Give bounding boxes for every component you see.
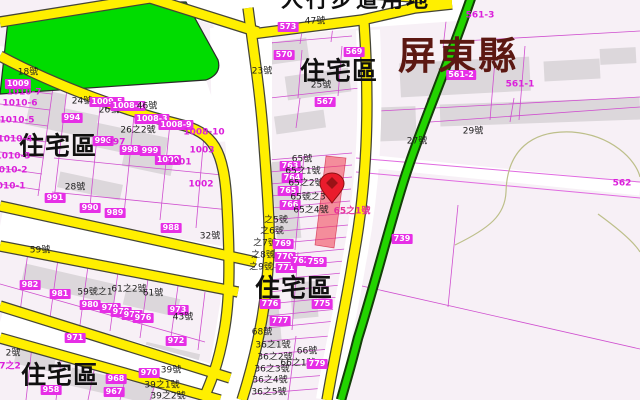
parcel-label: 779 — [307, 359, 328, 369]
parcel-label: 39之1號 — [144, 382, 179, 391]
parcel-label: 61號 — [143, 290, 163, 299]
parcel-label: 66號 — [297, 348, 317, 357]
parcel-label: 561-1 — [506, 81, 535, 90]
parcel-label: 970 — [139, 368, 160, 378]
parcel-label: 25號 — [311, 82, 331, 91]
parcel-label: 之8號 — [251, 252, 275, 261]
parcel-label: 972 — [166, 336, 187, 346]
parcel-label: 968 — [106, 374, 127, 384]
parcel-label: 65之4號 — [293, 207, 328, 216]
parcel-label: 39之2號 — [150, 393, 185, 400]
parcel-label: 1010-4 — [0, 136, 33, 145]
cadastral-zoning-map[interactable]: 人行步道用地屏東縣住宅區住宅區住宅區住宅區18號10091010-71010-6… — [0, 0, 640, 400]
parcel-label: 28號 — [65, 184, 85, 193]
zone-label: 住宅區 — [255, 276, 333, 301]
road-name-label: 人行步道用地 — [281, 0, 431, 12]
parcel-label: 1010-2 — [0, 167, 28, 176]
parcel-label: 18號 — [18, 69, 38, 78]
parcel-label: 776 — [260, 299, 281, 309]
parcel-label: 1001 — [166, 159, 191, 168]
parcel-label: 36之1號 — [255, 342, 290, 351]
parcel-label: 988 — [161, 223, 182, 233]
parcel-label: 2號 — [6, 350, 21, 359]
parcel-label: 570 — [274, 50, 295, 60]
parcel-label: 958 — [41, 385, 62, 395]
parcel-label: 759 — [306, 257, 327, 267]
parcel-label: 561-2 — [446, 70, 476, 80]
parcel-label: 27號 — [407, 138, 427, 147]
parcel-label: 1010-6 — [2, 100, 37, 109]
parcel-label: 59號 — [30, 247, 50, 256]
parcel-label: 46號 — [137, 103, 157, 112]
parcel-label: 1003 — [189, 147, 214, 156]
parcel-label: 29號 — [463, 128, 483, 137]
parcel-label: 23號 — [252, 68, 272, 77]
parcel-label: 47號 — [305, 18, 325, 27]
parcel-label: 739 — [392, 234, 413, 244]
location-pin-icon[interactable] — [317, 170, 347, 204]
parcel-label: 775 — [312, 299, 333, 309]
parcel-label: 61之2號 — [111, 286, 146, 295]
parcel-label: 36之5號 — [251, 389, 286, 398]
parcel-label: 569 — [344, 47, 365, 57]
parcel-label: 26之2號 — [120, 127, 155, 136]
parcel-label: 991 — [45, 193, 66, 203]
parcel-label: 7之2 — [0, 363, 21, 372]
parcel-label: 981 — [50, 289, 71, 299]
zone-label: 住宅區 — [21, 363, 99, 388]
parcel-label: 68號 — [252, 329, 272, 338]
parcel-label: 36之4號 — [252, 377, 287, 386]
parcel-label: 567 — [315, 97, 336, 107]
parcel-label: 994 — [62, 113, 83, 123]
parcel-label: 777 — [270, 316, 291, 326]
parcel-label: 976 — [133, 313, 154, 323]
parcel-label: 之6號 — [260, 228, 284, 237]
parcel-label: 769 — [273, 239, 294, 249]
parcel-label: 1008-10 — [183, 129, 224, 138]
parcel-label: 982 — [20, 280, 41, 290]
parcel-label: 562 — [613, 180, 632, 189]
parcel-label: 65之1號 — [334, 208, 371, 217]
parcel-label: 990 — [80, 203, 101, 213]
parcel-label: 39號 — [161, 367, 181, 376]
parcel-label: 之5號 — [264, 217, 288, 226]
parcel-label: 998 — [120, 145, 141, 155]
parcel-label: 573 — [278, 22, 299, 32]
parcel-label: 1002 — [188, 181, 213, 190]
parcel-label: 1010-1 — [0, 183, 26, 192]
parcel-label: 561-3 — [466, 12, 495, 21]
parcel-label: 1010-7 — [6, 89, 41, 98]
parcel-label: 1010-3 — [0, 153, 31, 162]
parcel-label: 967 — [104, 387, 125, 397]
parcel-label: 43號 — [173, 314, 193, 323]
parcel-label: 之9號 — [249, 264, 273, 273]
parcel-label: 1010-5 — [0, 117, 35, 126]
parcel-label: 971 — [65, 333, 86, 343]
parcel-label: 989 — [105, 208, 126, 218]
parcel-label: 59號之1 — [77, 289, 112, 298]
parcel-label: 980 — [80, 300, 101, 310]
parcel-label: 32號 — [200, 233, 220, 242]
